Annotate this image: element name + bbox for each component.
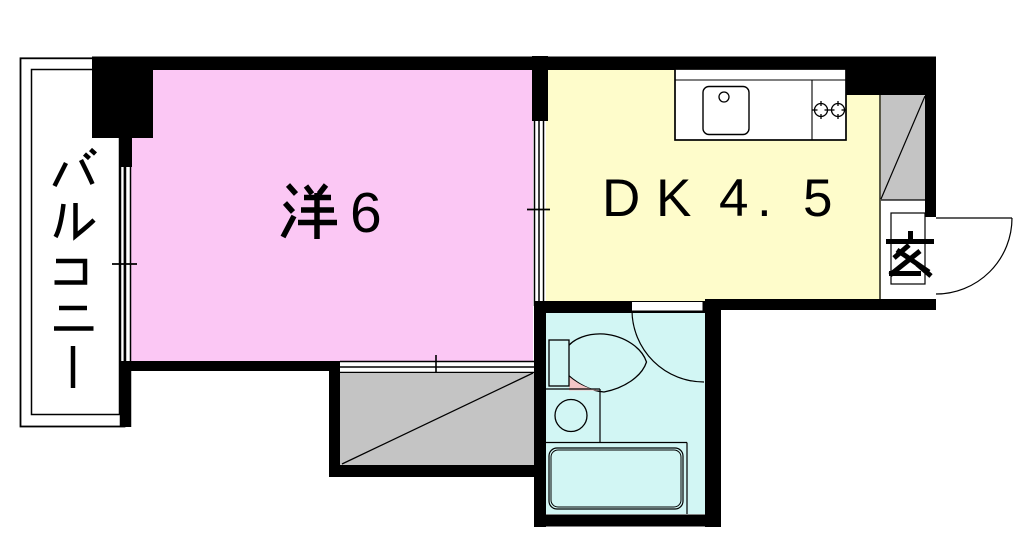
svg-text:K: K [656,169,691,228]
svg-text:D: D [602,169,640,228]
svg-text:5: 5 [803,169,832,228]
svg-text:.: . [757,169,772,228]
svg-text:4: 4 [719,169,748,228]
svg-text:6: 6 [350,181,382,245]
